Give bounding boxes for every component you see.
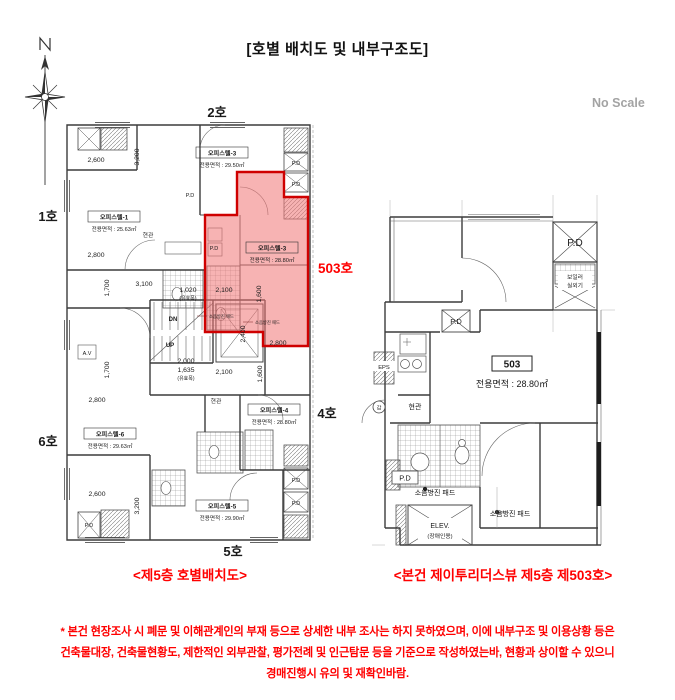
boiler-label: 보일러 bbox=[567, 273, 583, 281]
unit-area: 전용면적 : 29.50㎡ bbox=[200, 161, 245, 169]
stairs-dn-label: DN bbox=[169, 317, 178, 323]
left-plan: 2호 1호 6호 4호 5호 503호 오피스텔-3 전용면적 : 29.50㎡… bbox=[38, 105, 353, 559]
compass-icon bbox=[25, 38, 65, 185]
dim: 2,100 bbox=[215, 369, 232, 376]
pad-label: 소음방진 패드 bbox=[415, 488, 456, 497]
pd-label: P.D bbox=[186, 193, 194, 199]
dim: 1,600 bbox=[257, 365, 264, 382]
dim: 3,200 bbox=[134, 148, 141, 165]
dim: (유효폭) bbox=[179, 296, 196, 302]
unit-area: 전용면적 : 28.80㎡ bbox=[250, 256, 295, 264]
footnote-line-3: 경매진행시 유의 및 재확인바람. bbox=[0, 664, 675, 685]
pad-label: 소음방진 패드 bbox=[490, 509, 531, 518]
unit-name: 오피스텔-6 bbox=[96, 431, 125, 439]
dim: 2,400 bbox=[240, 325, 247, 342]
unit-name: 오피스텔-5 bbox=[208, 503, 237, 511]
unit-area: 전용면적 : 29.90㎡ bbox=[200, 514, 245, 522]
unit-area: 전용면적 : 29.63㎡ bbox=[88, 442, 133, 450]
ho-label-5: 5호 bbox=[223, 544, 242, 559]
unit-name: 오피스텔-3 bbox=[258, 245, 287, 253]
dim: 2,800 bbox=[88, 397, 105, 404]
kitchen-fixtures bbox=[398, 334, 426, 372]
ho-label-6: 6호 bbox=[38, 434, 57, 449]
footnote-line-1: * 본건 현장조사 시 폐문 및 이해관계인의 부재 등으로 상세한 내부 조사… bbox=[0, 622, 675, 643]
page: [호별 배치도 및 내부구조도] No Scale bbox=[0, 0, 675, 700]
dim: 2,800 bbox=[269, 340, 286, 347]
elevator-label: ELEV. bbox=[430, 523, 449, 530]
pd-label: P.D bbox=[85, 523, 93, 529]
dim: 1,700 bbox=[104, 361, 111, 378]
gap-label: 갑 bbox=[377, 405, 382, 412]
dim: 1,020 bbox=[179, 287, 196, 294]
elevator-sub-label: (장애인용) bbox=[427, 532, 452, 540]
dim: 1,635 bbox=[177, 367, 194, 374]
dim: 3,200 bbox=[134, 497, 141, 514]
right-plan-tiled-rooms bbox=[374, 264, 595, 545]
stairs bbox=[150, 302, 213, 361]
pd-label: P.D bbox=[292, 478, 300, 484]
unit-area: 전용면적 : 25.63㎡ bbox=[92, 225, 137, 233]
floorplan-canvas: 2호 1호 6호 4호 5호 503호 오피스텔-3 전용면적 : 29.50㎡… bbox=[0, 0, 675, 612]
window-bar bbox=[597, 442, 602, 506]
entry-label: 현관 bbox=[143, 231, 154, 239]
right-plan: 503 전용면적 : 28.80㎡ P.D 보일러 실외기 P.D EPS 현관… bbox=[362, 195, 615, 545]
pad-label: 소음방진 패드 bbox=[255, 319, 280, 326]
entry-label: 현관 bbox=[409, 402, 422, 411]
unit-area-text: 전용면적 : 28.80㎡ bbox=[476, 378, 548, 389]
entry-label: 현관 bbox=[211, 397, 222, 405]
unit-name: 오피스텔-4 bbox=[260, 407, 289, 415]
dim: 2,000 bbox=[177, 358, 194, 365]
pd-label: P.D bbox=[450, 317, 462, 326]
unit-name: 오피스텔-3 bbox=[208, 150, 237, 158]
pd-label: P.D bbox=[210, 246, 218, 252]
footnote: * 본건 현장조사 시 폐문 및 이해관계인의 부재 등으로 상세한 내부 조사… bbox=[0, 622, 675, 685]
pd-label: P.D bbox=[399, 474, 411, 483]
unit-name: 오피스텔-1 bbox=[100, 214, 129, 222]
stairs-up-label: UP bbox=[166, 343, 174, 349]
ho-label-1: 1호 bbox=[38, 209, 57, 224]
dim: 2,600 bbox=[88, 491, 105, 498]
av-label: A.V bbox=[83, 351, 92, 357]
unit-number: 503 bbox=[504, 360, 521, 371]
pd-label: P.D bbox=[292, 182, 300, 188]
pd-label: P.D bbox=[292, 501, 300, 507]
outdoor-unit-label: 실외기 bbox=[567, 282, 583, 290]
ho-label-4: 4호 bbox=[317, 406, 336, 421]
pd-label: P.D bbox=[567, 238, 582, 249]
window-bar bbox=[597, 332, 602, 404]
footnote-line-2: 건축물대장, 건축물현황도, 제한적인 외부관찰, 평가전례 및 인근탐문 등을… bbox=[0, 643, 675, 664]
left-plan-caption: <제5층 호별배치도> bbox=[133, 564, 247, 584]
pd-label: P.D bbox=[292, 161, 300, 167]
right-plan-caption: <본건 제이투리더스뷰 제5층 제503호> bbox=[394, 564, 613, 584]
dim: 2,800 bbox=[87, 252, 104, 259]
eps-label: EPS bbox=[378, 365, 390, 371]
dim: 3,100 bbox=[135, 281, 152, 288]
unit-503-callout: 503호 bbox=[318, 261, 354, 276]
pad-label: 소음방진 패드 bbox=[209, 313, 234, 320]
unit-area: 전용면적 : 28.80㎡ bbox=[252, 418, 297, 426]
ho-label-2: 2호 bbox=[207, 105, 226, 120]
dim: 1,600 bbox=[256, 285, 263, 302]
dim: 1,700 bbox=[104, 279, 111, 296]
dim: (유효폭) bbox=[177, 376, 194, 382]
dim: 2,100 bbox=[215, 287, 232, 294]
dim: 2,600 bbox=[87, 157, 104, 164]
